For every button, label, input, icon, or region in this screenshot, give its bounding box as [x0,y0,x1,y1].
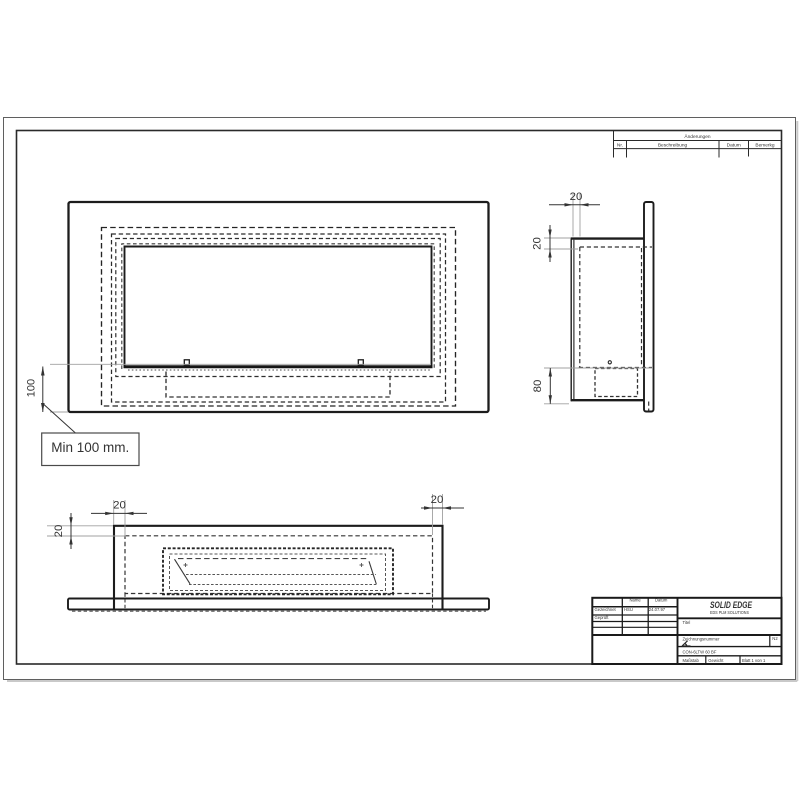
svg-text:100: 100 [26,379,38,397]
svg-text:Nr.: Nr. [617,143,623,149]
svg-text:N2: N2 [772,636,778,641]
svg-text:Zeichnungsnummer: Zeichnungsnummer [683,636,721,641]
svg-text:20: 20 [532,237,544,250]
svg-text:Maßstab: Maßstab [683,658,700,663]
svg-text:Gewicht: Gewicht [708,658,724,663]
svg-text:Bemerkg: Bemerkg [755,143,775,149]
svg-text:Gezeichnet: Gezeichnet [595,607,617,612]
svg-text:Titel: Titel [683,620,691,625]
svg-text:20: 20 [113,500,126,512]
svg-text:Datum: Datum [727,143,741,149]
svg-text:CON-6LTW 60 BF: CON-6LTW 60 BF [683,650,717,655]
svg-text:Datum: Datum [655,598,668,603]
svg-text:24.07.97: 24.07.97 [649,607,666,612]
svg-text:Blatt 1 von 1: Blatt 1 von 1 [742,658,766,663]
svg-text:80: 80 [532,380,544,393]
svg-text:Min 100 mm.: Min 100 mm. [51,440,129,455]
svg-text:EDS PLM SOLUTIONS: EDS PLM SOLUTIONS [710,610,749,615]
svg-text:Änderungen: Änderungen [684,133,710,140]
svg-text:Geprüft: Geprüft [595,615,610,620]
svg-text:20: 20 [53,525,65,538]
svg-text:Beschreibung: Beschreibung [658,143,688,149]
svg-text:20: 20 [570,191,583,203]
svg-text:Name: Name [630,598,642,603]
svg-text:20: 20 [431,494,444,506]
svg-text:HSU: HSU [624,607,633,612]
